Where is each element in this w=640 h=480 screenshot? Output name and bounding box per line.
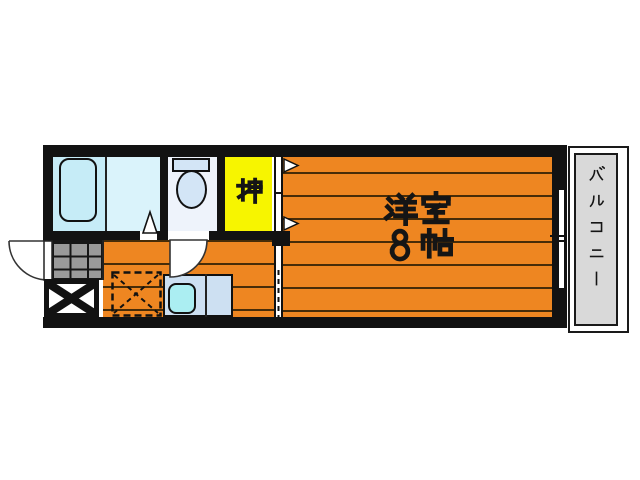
washroom-door-opening	[140, 231, 157, 240]
counter-divider	[205, 274, 207, 317]
main-room-size-text: 8帖	[0, 0, 1, 1]
wall-toilet-closet	[217, 157, 225, 231]
closet-label	[225, 177, 272, 205]
balcony-label-text: バルコニー	[0, 0, 1, 1]
closet-label-text: 押	[0, 0, 1, 1]
bathtub	[59, 158, 97, 222]
wall-bottom	[43, 317, 567, 328]
main-room-label	[283, 191, 552, 263]
wall-left	[43, 145, 53, 241]
main-room-name	[382, 191, 454, 227]
wall-top	[43, 145, 567, 157]
balcony-sliding-window	[557, 190, 566, 288]
washroom	[107, 157, 160, 231]
kitchen-sink	[168, 283, 196, 314]
genkan-edge	[102, 240, 104, 280]
closet-sliding-door	[274, 157, 283, 231]
room-partition-track	[274, 246, 283, 317]
entrance-door-arc	[9, 241, 52, 280]
balcony-label	[574, 166, 618, 287]
toilet-bowl	[176, 170, 207, 209]
main-room-size	[382, 227, 454, 263]
wall-washroom-toilet	[160, 157, 168, 240]
cross-hatch-box	[44, 279, 99, 318]
genkan-tiles	[50, 240, 103, 280]
toilet-door-opening	[168, 231, 209, 240]
main-room-name-text: 洋室	[0, 0, 1, 1]
floorplan-canvas: 洋室 8帖 押 バルコニー	[0, 0, 640, 480]
